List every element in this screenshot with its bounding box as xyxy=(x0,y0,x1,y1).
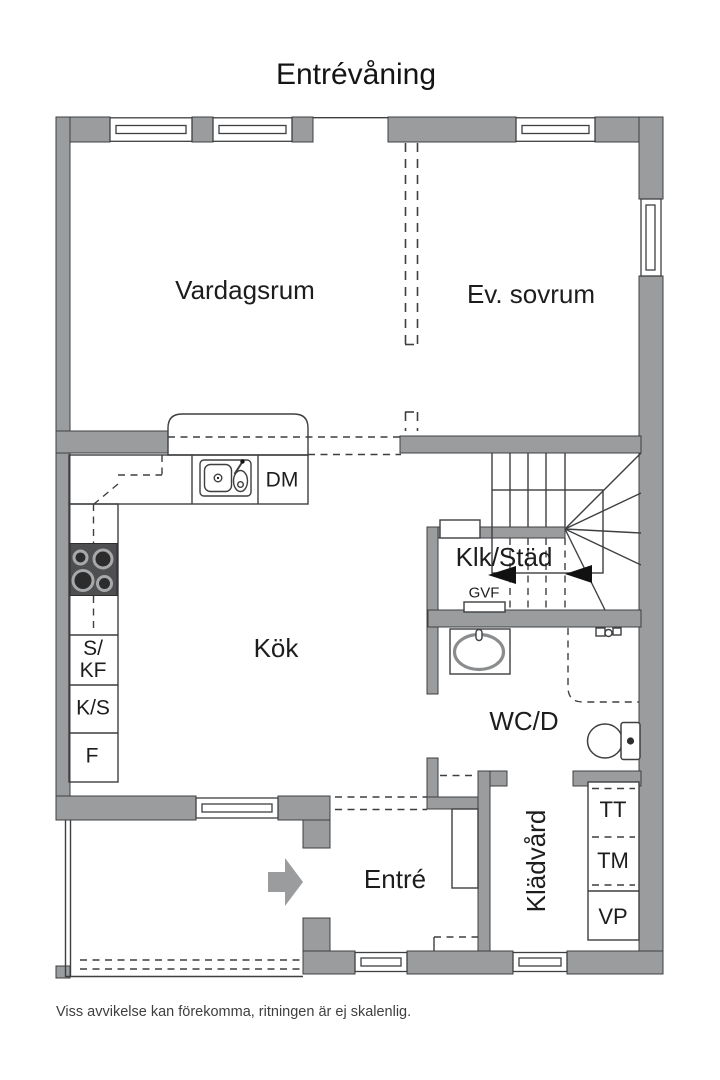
window-icon xyxy=(110,118,192,142)
appliance-label-f: F xyxy=(86,746,99,767)
appliance-label-dm: DM xyxy=(266,470,299,491)
appliance-label-tm: TM xyxy=(597,850,629,872)
windows xyxy=(110,118,661,972)
disclaimer-text: Viss avvikelse kan förekomma, ritningen … xyxy=(56,1004,411,1020)
room-label-kladvard: Klädvård xyxy=(523,810,549,913)
room-label-vardagsrum: Vardagsrum xyxy=(175,277,315,303)
kitchen-island xyxy=(168,414,401,455)
room-label-ev-sovrum: Ev. sovrum xyxy=(467,281,595,307)
washer-tap-icon xyxy=(596,628,621,637)
stair-direction-arrow-icon xyxy=(565,565,592,583)
walls xyxy=(56,117,663,978)
room-label-entre: Entré xyxy=(364,866,426,892)
shower-area-dashed xyxy=(568,628,639,702)
stove-icon xyxy=(70,544,117,596)
window-icon xyxy=(196,798,278,818)
window-icon xyxy=(355,953,407,972)
toilet-icon xyxy=(588,723,641,760)
kitchen-sink-icon xyxy=(200,459,251,496)
entrance-arrow-icon xyxy=(268,858,303,906)
appliance-label-kf: KF xyxy=(80,660,107,682)
room-label-klk-stad: Klk/Städ xyxy=(456,544,553,570)
appliance-label-s: S/ xyxy=(80,638,107,660)
floor-plan-page: Entrévåning xyxy=(0,0,720,1080)
optional-wall-dashed xyxy=(405,143,418,431)
appliance-label-tt: TT xyxy=(600,799,627,821)
window-icon xyxy=(641,199,661,276)
wc-sink-icon xyxy=(450,629,510,674)
door-leaf xyxy=(452,809,478,888)
appliance-label-k-s: K/S xyxy=(76,698,110,719)
kitchen-counter xyxy=(69,455,308,782)
room-label-wc-d: WC/D xyxy=(489,708,558,734)
appliance-label-gvf: GVF xyxy=(469,586,500,601)
entry-porch xyxy=(66,820,304,977)
gvf-unit xyxy=(464,602,505,612)
window-icon xyxy=(513,953,567,972)
window-icon xyxy=(516,118,595,142)
room-label-kok: Kök xyxy=(254,635,299,661)
appliance-label-s-kf: S/KF xyxy=(80,638,107,682)
window-icon xyxy=(213,118,292,142)
appliance-label-vp: VP xyxy=(598,906,627,928)
door-leaf xyxy=(440,520,480,538)
